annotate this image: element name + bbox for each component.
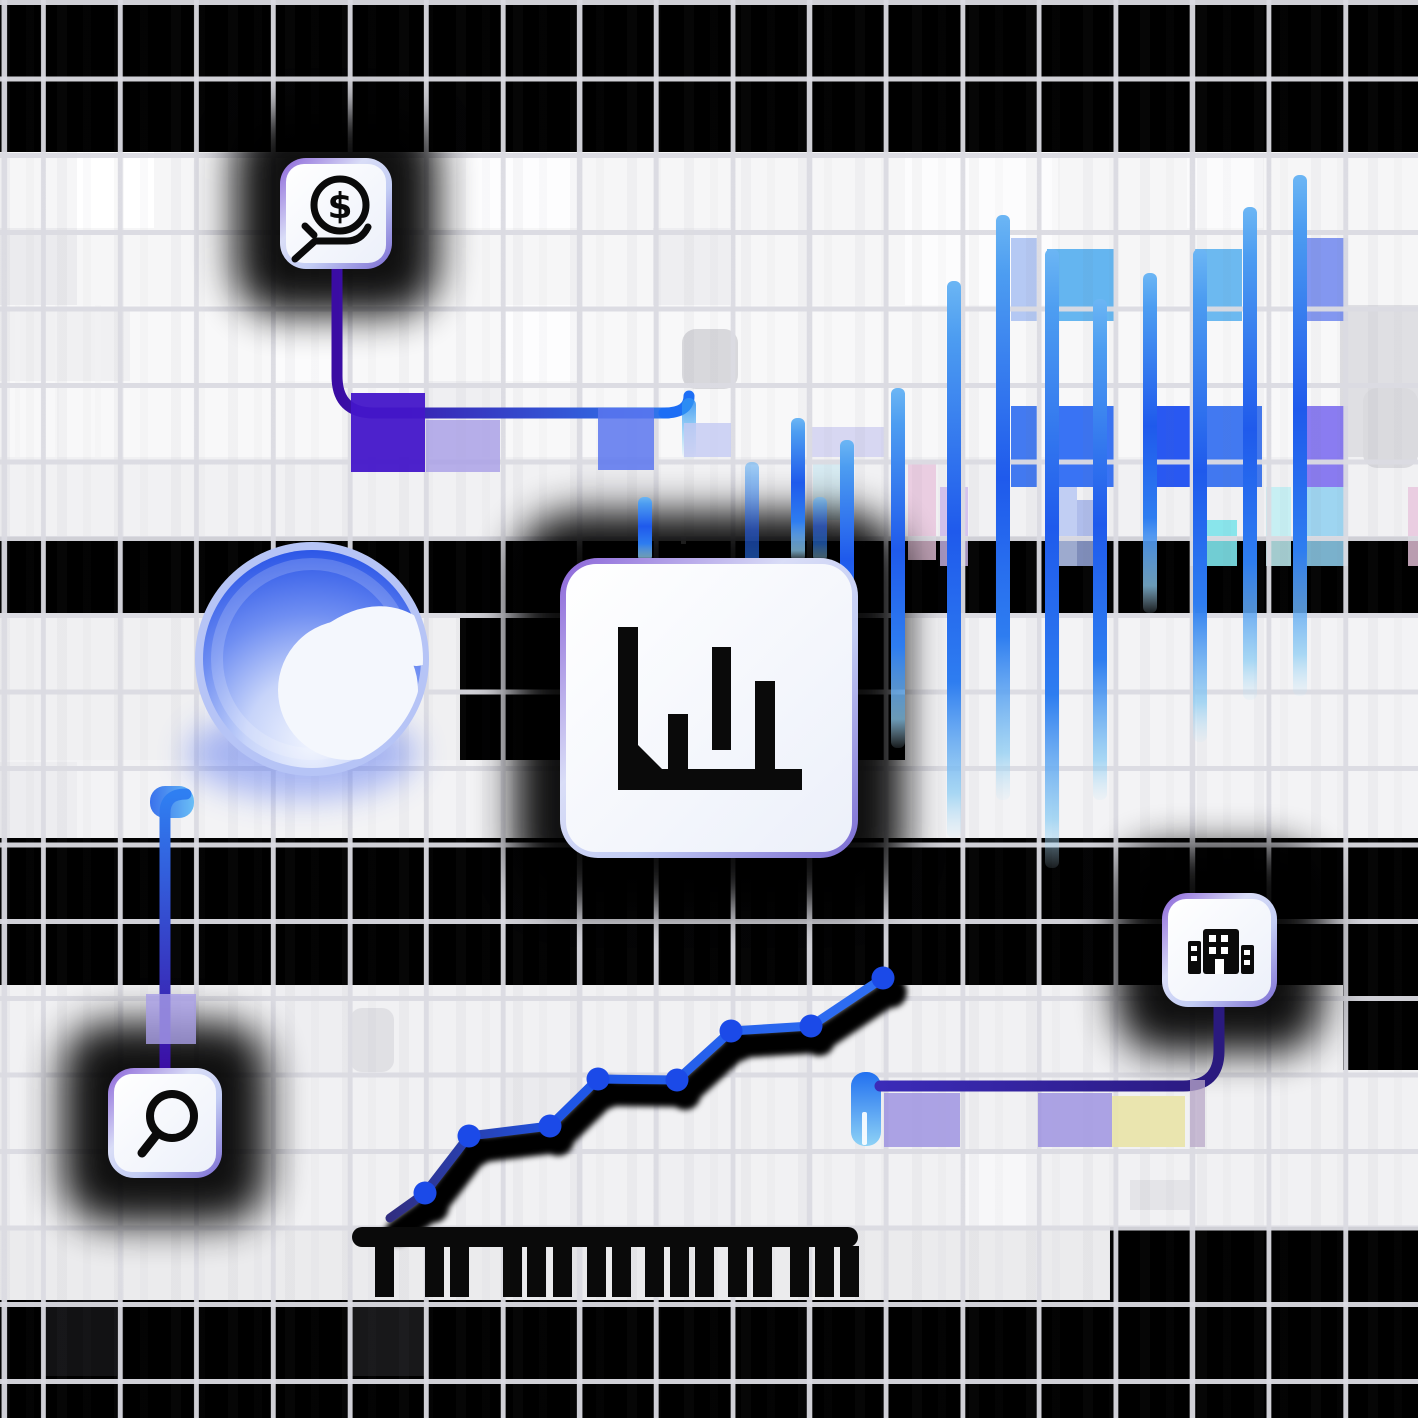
comb-ruler — [352, 1227, 859, 1297]
gradient-bar — [1045, 249, 1059, 868]
line-chart-dot — [720, 1020, 743, 1043]
card-building — [1162, 893, 1277, 1007]
connector-overlay — [351, 393, 425, 472]
gradient-bar — [1093, 299, 1107, 800]
gradient-bar — [638, 497, 652, 562]
line-chart-dot — [800, 1015, 823, 1038]
stub-highlight — [862, 1112, 867, 1145]
connector-overlay — [1038, 1093, 1112, 1147]
connector-overlay — [146, 994, 196, 1044]
connector-overlay — [426, 420, 500, 472]
card-bar-chart — [560, 558, 858, 858]
illustration-canvas: $ — [0, 0, 1418, 1418]
gradient-bar — [996, 215, 1010, 800]
gradient-bar — [1143, 273, 1157, 613]
line-chart-dot — [872, 967, 895, 990]
line-chart-dot — [587, 1068, 610, 1091]
card-search — [108, 1068, 222, 1178]
gradient-bar — [791, 418, 805, 562]
connector-overlay — [1190, 1080, 1205, 1147]
line-chart-dot — [414, 1182, 437, 1205]
gradient-bar — [1193, 249, 1207, 742]
gradient-bar — [891, 388, 905, 748]
artwork-layer: $ — [0, 0, 1418, 1418]
connector-overlay — [884, 1093, 960, 1147]
line-chart-dot — [458, 1125, 481, 1148]
line-chart-dot — [666, 1069, 689, 1092]
connector-overlay — [598, 408, 654, 470]
gradient-bar — [947, 281, 961, 838]
line-chart-dot — [539, 1115, 562, 1138]
gradient-bar — [1243, 207, 1257, 700]
gradient-bar — [1293, 175, 1307, 696]
connector-overlay — [1112, 1096, 1185, 1147]
gradient-bar — [813, 497, 827, 562]
card-money-hand: $ — [280, 158, 392, 269]
connector-overlay — [684, 423, 731, 457]
svg-text:$: $ — [327, 186, 352, 227]
